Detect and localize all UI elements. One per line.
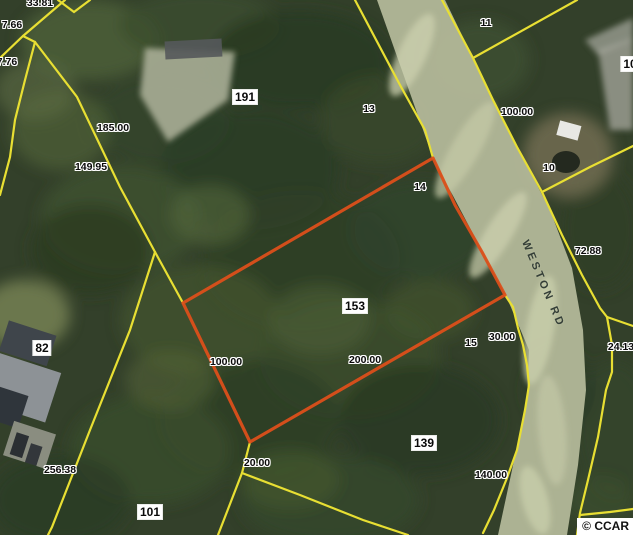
- map-label-191: 191: [233, 90, 257, 104]
- map-label-11: 11: [480, 17, 491, 29]
- map-label-24-13: 24.13: [608, 341, 633, 353]
- map-label-139: 139: [412, 436, 436, 450]
- map-label-101: 101: [138, 505, 162, 519]
- map-label-20-00: 20.00: [244, 457, 270, 469]
- map-label-256-38: 256.38: [44, 464, 76, 476]
- parcel-map-canvas[interactable]: 33.817.667.76185.00149.95191131110100.00…: [0, 0, 633, 535]
- map-label-14: 14: [414, 181, 426, 193]
- map-label-7-66: 7.66: [2, 19, 22, 31]
- map-label-33-81: 33.81: [27, 0, 53, 9]
- map-label-153: 153: [343, 299, 367, 313]
- map-label-100-00: 100.00: [501, 106, 533, 118]
- map-label-100-00: 100.00: [210, 356, 242, 368]
- map-label-149-95: 149.95: [75, 161, 107, 173]
- map-label-30-00: 30.00: [489, 331, 515, 343]
- map-label-72-88: 72.88: [575, 245, 601, 257]
- map-label-13: 13: [363, 103, 375, 115]
- map-label-7-76: 7.76: [0, 56, 17, 68]
- map-label-185-00: 185.00: [97, 122, 129, 134]
- map-label-200-00: 200.00: [349, 354, 381, 366]
- map-label-10: 10: [621, 57, 633, 71]
- copyright-watermark: © CCAR: [577, 518, 633, 535]
- map-label-140-00: 140.00: [475, 469, 507, 481]
- map-label-82: 82: [33, 341, 50, 355]
- map-label-10: 10: [543, 162, 555, 174]
- map-label-15: 15: [465, 337, 477, 349]
